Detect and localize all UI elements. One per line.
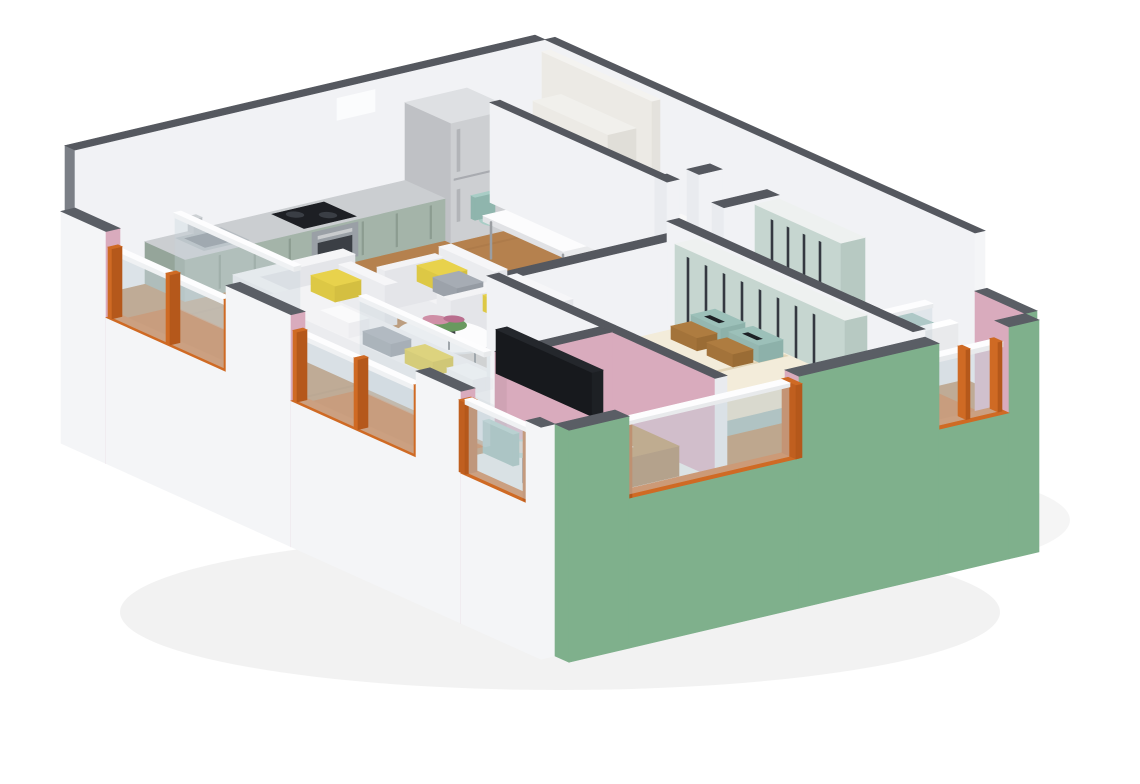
facade-pier-south xyxy=(526,417,555,659)
cabinet-door-line-6 xyxy=(430,206,432,239)
living-balcony-post-2 xyxy=(354,355,368,429)
kitchen-balcony-post-1 xyxy=(108,245,122,319)
fridge-handle-lower xyxy=(457,189,460,222)
cabinet-door-line-4 xyxy=(362,222,364,255)
living-balcony-post-1 xyxy=(293,328,307,402)
fridge-handle-upper xyxy=(457,129,460,172)
kitchen-balcony-post-2 xyxy=(166,271,180,345)
apartment-floorplan-figure xyxy=(0,0,1140,784)
cabinet-door-line-5 xyxy=(396,214,398,247)
corner-balcony-post-2 xyxy=(958,345,970,420)
floorplan-3d-render xyxy=(0,0,1140,784)
facade-pier-mid-right xyxy=(785,337,939,608)
corner-balcony-post-3 xyxy=(990,338,1002,413)
facade-pier-south-corner xyxy=(555,410,629,662)
